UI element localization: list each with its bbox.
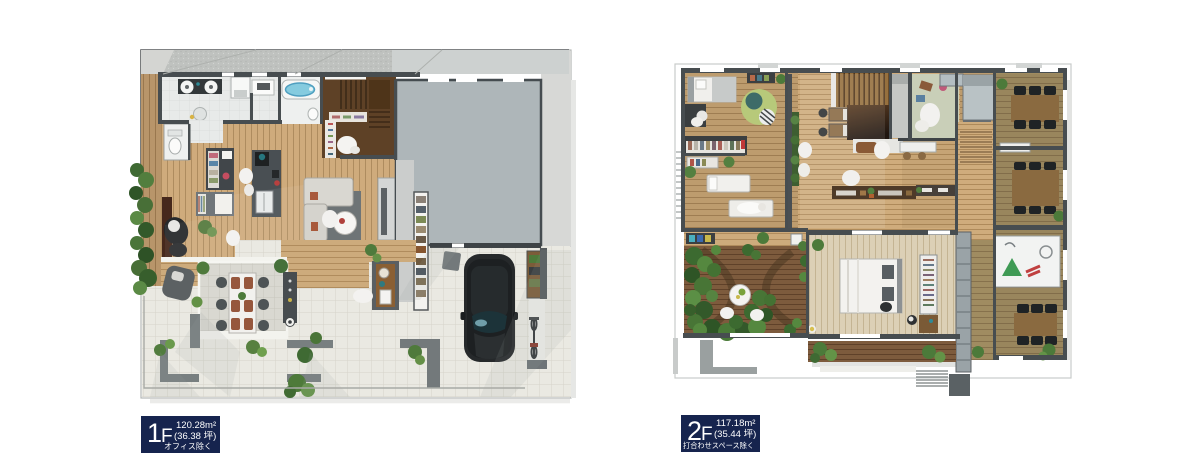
svg-text:オフィス除く: オフィス除く [164,441,212,451]
svg-text:打合わせスペース除く: 打合わせスペース除く [683,441,754,450]
svg-text:(35.44 坪): (35.44 坪) [714,428,756,440]
svg-text:1: 1 [147,418,162,448]
svg-text:117.18m²: 117.18m² [716,418,755,429]
svg-text:120.28m²: 120.28m² [176,420,216,431]
svg-text:(36.38 坪): (36.38 坪) [174,430,216,442]
